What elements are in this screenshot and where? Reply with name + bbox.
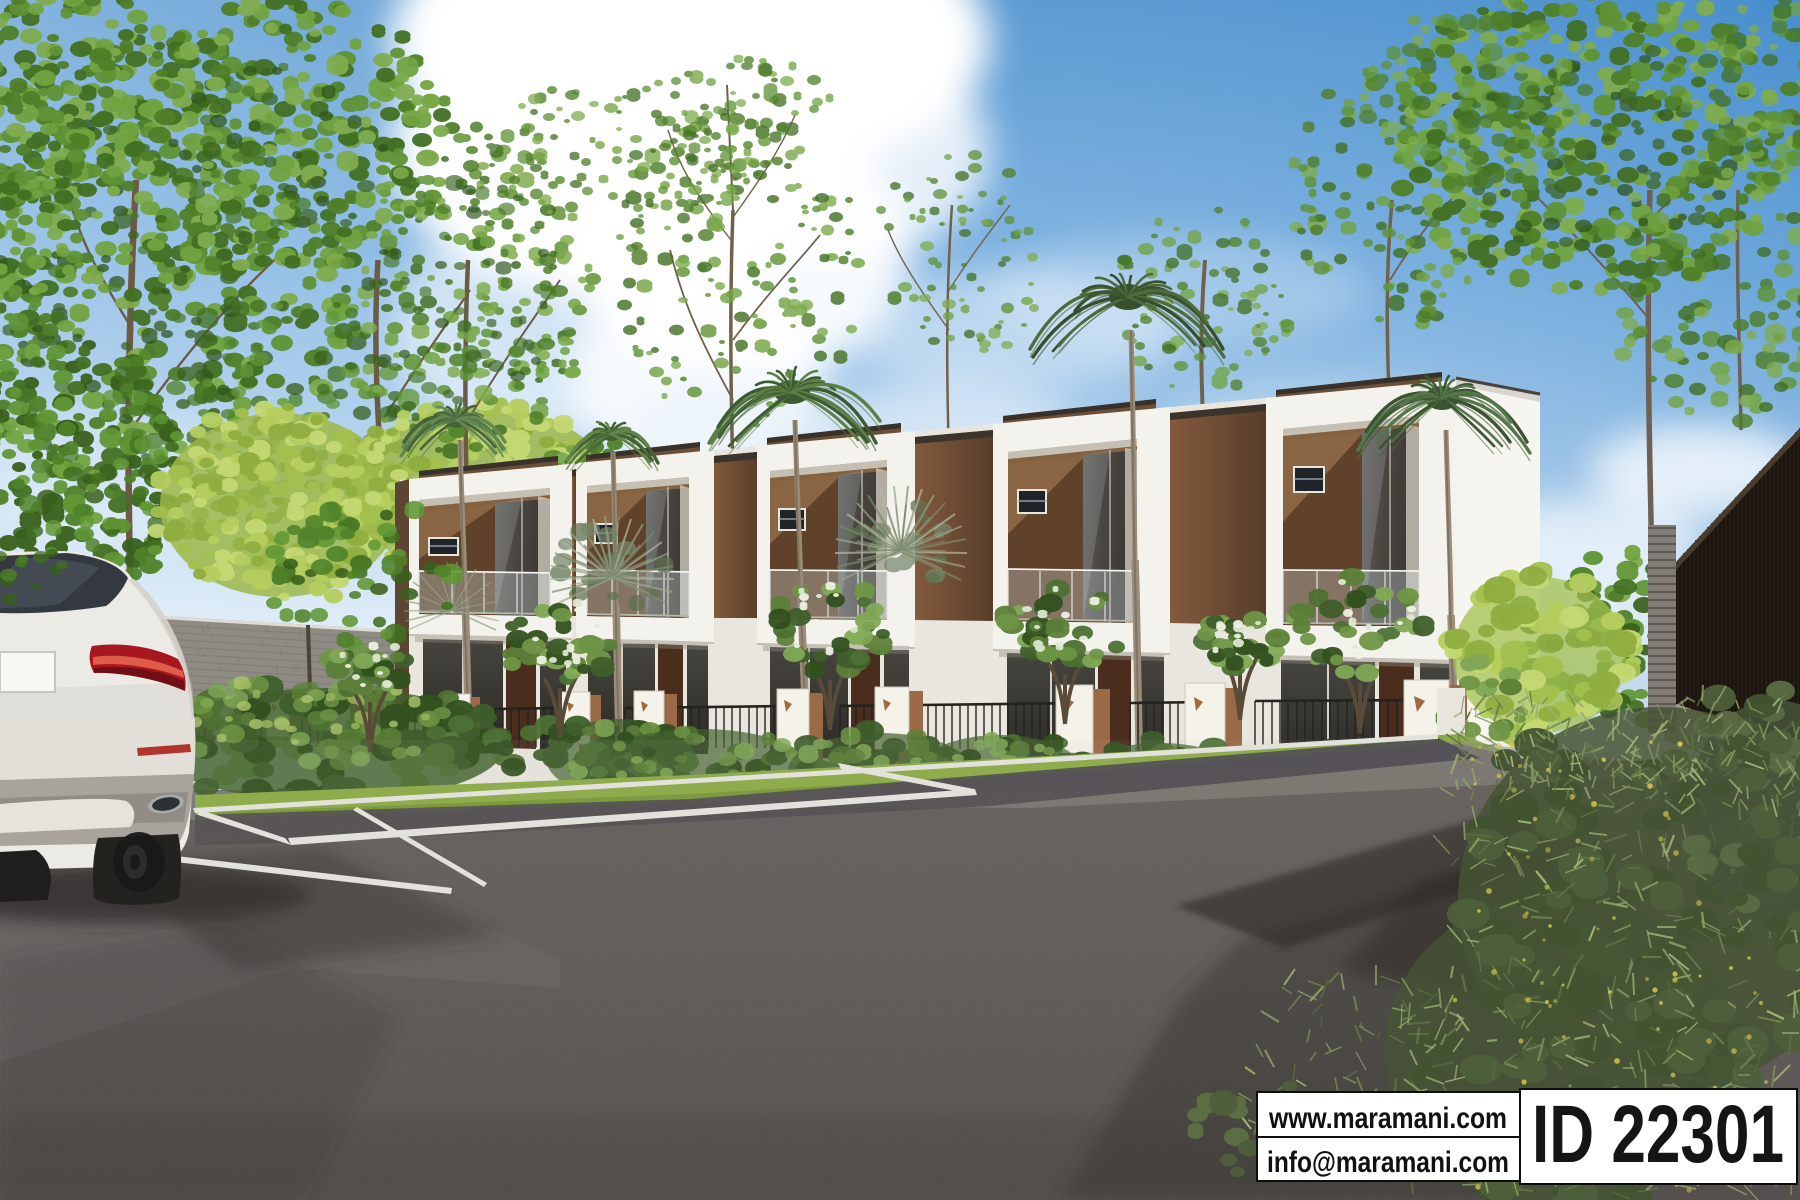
svg-text:www.maramani.com: www.maramani.com [1268, 1102, 1507, 1135]
svg-text:info@maramani.com: info@maramani.com [1267, 1146, 1509, 1179]
svg-text:ID 22301: ID 22301 [1532, 1089, 1784, 1180]
